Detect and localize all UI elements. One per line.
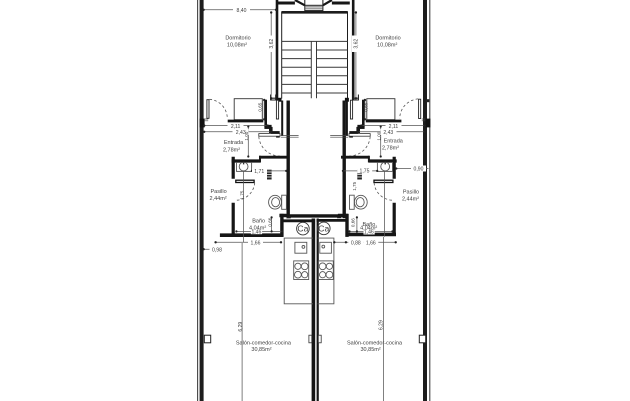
svg-text:2,43: 2,43 — [383, 130, 393, 136]
svg-text:Entrada: Entrada — [224, 140, 244, 146]
svg-text:1,00: 1,00 — [244, 131, 249, 140]
svg-text:30,85m²: 30,85m² — [361, 347, 381, 353]
svg-text:3,62: 3,62 — [354, 39, 360, 49]
svg-text:Ca: Ca — [318, 223, 329, 233]
svg-text:Dormitorio: Dormitorio — [375, 36, 400, 42]
svg-text:Salón-comedor-cocina: Salón-comedor-cocina — [236, 340, 292, 346]
svg-text:0,65: 0,65 — [363, 102, 368, 111]
svg-text:1,75: 1,75 — [239, 190, 244, 199]
svg-text:8,40: 8,40 — [237, 8, 247, 14]
svg-text:0,66: 0,66 — [351, 218, 356, 227]
svg-text:Pasillo: Pasillo — [210, 189, 226, 195]
svg-text:1,75: 1,75 — [352, 181, 357, 190]
svg-text:2,44m²: 2,44m² — [210, 196, 227, 202]
svg-text:6,29: 6,29 — [238, 322, 244, 332]
svg-text:0,90: 0,90 — [414, 167, 424, 173]
svg-text:1,66: 1,66 — [251, 241, 261, 247]
svg-text:4,04m²: 4,04m² — [249, 226, 266, 232]
svg-text:6,29: 6,29 — [379, 320, 385, 330]
svg-text:30,85m²: 30,85m² — [251, 347, 271, 353]
svg-text:4,04m²: 4,04m² — [360, 226, 377, 232]
svg-text:0,98: 0,98 — [212, 247, 222, 253]
svg-text:0,66: 0,66 — [267, 217, 272, 226]
svg-text:Baño: Baño — [252, 218, 265, 224]
svg-text:10,08m²: 10,08m² — [227, 42, 247, 48]
svg-text:2,44m²: 2,44m² — [402, 197, 419, 203]
svg-text:1,75: 1,75 — [360, 169, 370, 175]
svg-text:1,00: 1,00 — [376, 131, 381, 140]
svg-text:Entrada: Entrada — [384, 138, 404, 144]
svg-text:Dormitorio: Dormitorio — [225, 36, 250, 42]
svg-text:2,78m²: 2,78m² — [382, 146, 399, 152]
svg-text:Salón-comedor-cocina: Salón-comedor-cocina — [347, 340, 403, 346]
svg-text:0,88: 0,88 — [351, 241, 361, 247]
svg-text:0,65: 0,65 — [258, 102, 263, 111]
svg-text:1,71: 1,71 — [254, 169, 264, 175]
svg-text:10,08m²: 10,08m² — [377, 42, 397, 48]
svg-text:1,66: 1,66 — [366, 241, 376, 247]
svg-text:Ca: Ca — [297, 224, 308, 234]
svg-text:Pasillo: Pasillo — [403, 190, 419, 196]
svg-text:3,62: 3,62 — [269, 39, 275, 49]
svg-text:2,78m²: 2,78m² — [223, 147, 240, 153]
